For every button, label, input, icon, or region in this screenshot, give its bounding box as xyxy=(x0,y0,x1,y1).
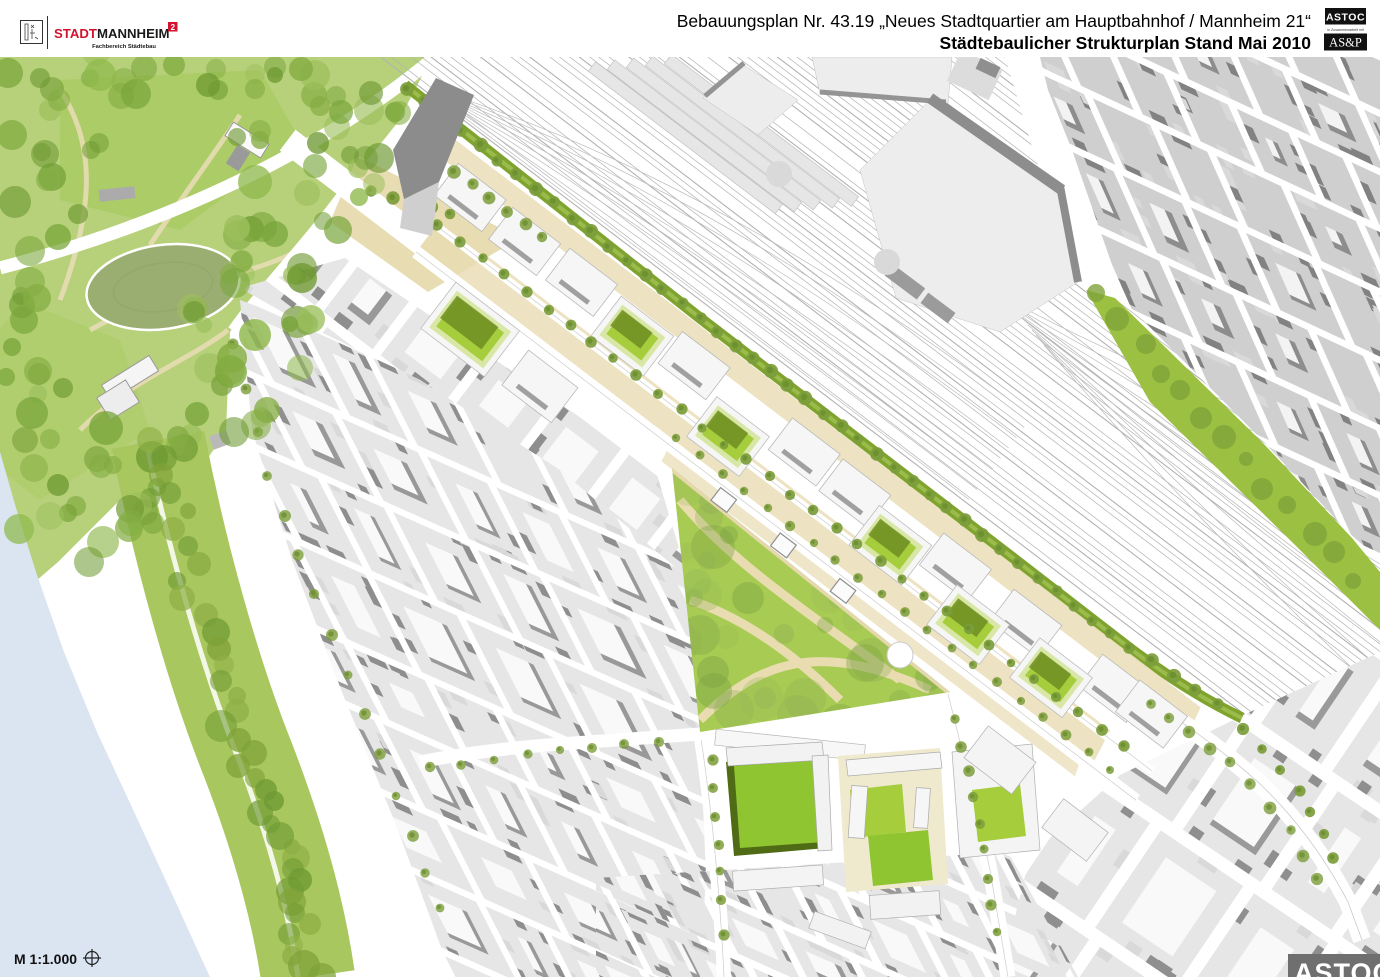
svg-text:Städtebaulicher Strukturplan S: Städtebaulicher Strukturplan Stand Mai 2… xyxy=(940,33,1312,53)
svg-text:Fachbereich Städtebau: Fachbereich Städtebau xyxy=(92,44,156,50)
svg-text:ASTOC: ASTOC xyxy=(1294,958,1380,977)
svg-text:M 1:1.000: M 1:1.000 xyxy=(14,951,77,967)
svg-text:2: 2 xyxy=(171,23,176,32)
svg-text:in Zusammenarbeit mit: in Zusammenarbeit mit xyxy=(1327,28,1364,32)
svg-text:STADTMANNHEIM: STADTMANNHEIM xyxy=(54,26,170,41)
svg-text:AS&P: AS&P xyxy=(1329,36,1362,50)
svg-text:Bebauungsplan Nr. 43.19 „Neues: Bebauungsplan Nr. 43.19 „Neues Stadtquar… xyxy=(677,11,1311,31)
svg-text:ASTOC: ASTOC xyxy=(1326,12,1365,24)
